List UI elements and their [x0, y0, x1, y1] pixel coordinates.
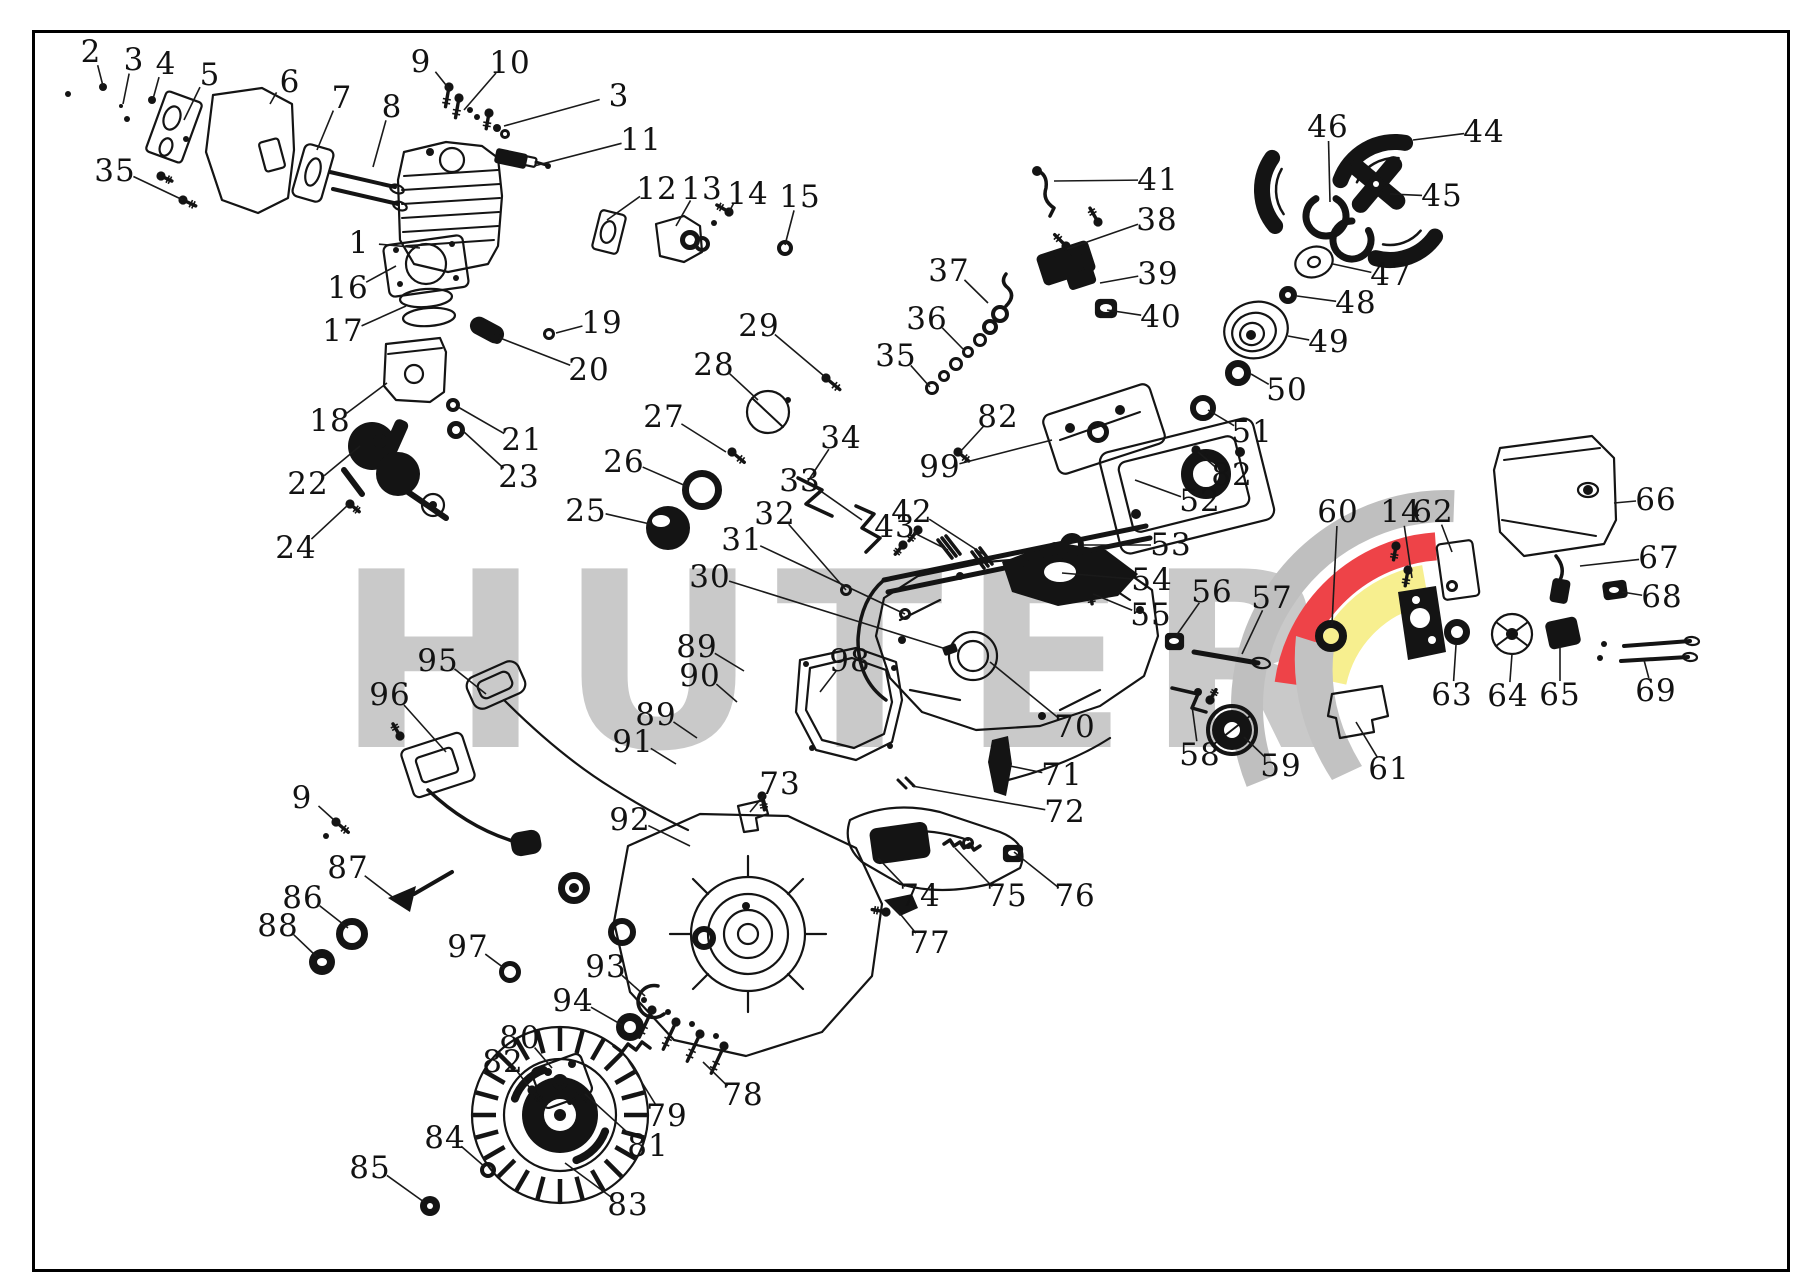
part-label-41: 41	[1137, 162, 1178, 198]
part-label-3: 3	[609, 78, 630, 114]
part-label-14: 14	[727, 176, 768, 212]
part-label-70: 70	[1054, 709, 1095, 745]
part-label-60: 60	[1317, 494, 1358, 530]
part-label-61: 61	[1368, 751, 1409, 787]
part-label-21: 21	[501, 422, 542, 458]
part-label-92: 92	[609, 802, 650, 838]
part-label-5: 5	[200, 57, 221, 93]
part-label-71: 71	[1041, 757, 1082, 793]
part-label-8: 8	[382, 89, 403, 125]
part-label-44: 44	[1463, 114, 1504, 150]
part-label-7: 7	[332, 80, 353, 116]
part-label-57: 57	[1251, 580, 1292, 616]
part-label-32: 32	[754, 496, 795, 532]
part-label-13: 13	[681, 171, 722, 207]
part-label-53: 53	[1150, 527, 1191, 563]
part-label-93: 93	[585, 949, 626, 985]
part-label-24: 24	[275, 530, 316, 566]
part-label-91: 91	[612, 724, 653, 760]
part-label-34: 34	[820, 420, 861, 456]
part-label-76: 76	[1054, 878, 1095, 914]
part-label-37: 37	[928, 253, 969, 289]
part-label-62: 62	[1412, 494, 1453, 530]
part-label-51: 51	[1231, 414, 1272, 450]
part-label-85: 85	[349, 1150, 390, 1186]
part-label-35: 35	[94, 153, 135, 189]
part-label-77: 77	[909, 925, 950, 961]
part-label-90: 90	[679, 658, 720, 694]
part-label-19: 19	[581, 305, 622, 341]
part-label-56: 56	[1191, 574, 1232, 610]
part-label-64: 64	[1487, 678, 1528, 714]
part-label-10: 10	[489, 45, 530, 81]
part-label-97: 97	[447, 929, 488, 965]
part-label-46: 46	[1307, 109, 1348, 145]
part-label-48: 48	[1335, 285, 1376, 321]
part-label-95: 95	[417, 643, 458, 679]
part-label-38: 38	[1136, 202, 1177, 238]
part-label-82: 82	[482, 1044, 523, 1080]
part-label-2: 2	[81, 34, 102, 70]
part-label-6: 6	[280, 64, 301, 100]
part-label-59: 59	[1260, 748, 1301, 784]
part-label-25: 25	[565, 493, 606, 529]
part-label-33: 33	[779, 463, 820, 499]
part-label-15: 15	[779, 179, 820, 215]
part-label-50: 50	[1266, 372, 1307, 408]
part-label-69: 69	[1635, 673, 1676, 709]
part-label-20: 20	[568, 352, 609, 388]
part-label-87: 87	[327, 850, 368, 886]
part-label-26: 26	[603, 444, 644, 480]
part-label-27: 27	[643, 399, 684, 435]
part-label-72: 72	[1044, 794, 1085, 830]
part-label-22: 22	[287, 466, 328, 502]
part-label-1: 1	[349, 225, 370, 261]
part-label-81: 81	[627, 1128, 668, 1164]
part-label-54: 54	[1131, 562, 1172, 598]
part-label-75: 75	[986, 878, 1027, 914]
part-label-12: 12	[636, 171, 677, 207]
part-label-16: 16	[327, 270, 368, 306]
part-label-99: 99	[919, 449, 960, 485]
part-label-94: 94	[552, 983, 593, 1019]
part-label-3: 3	[124, 42, 145, 78]
part-label-39: 39	[1137, 256, 1178, 292]
part-label-28: 28	[693, 347, 734, 383]
part-label-98: 98	[829, 643, 870, 679]
part-label-82: 82	[977, 399, 1018, 435]
part-label-9: 9	[292, 780, 313, 816]
part-label-9: 9	[411, 44, 432, 80]
part-label-49: 49	[1308, 324, 1349, 360]
parts-diagram-page: HUTER 1233456789910111213141415161718192…	[0, 0, 1809, 1283]
part-label-88: 88	[257, 908, 298, 944]
part-label-67: 67	[1638, 540, 1679, 576]
part-label-82: 82	[1211, 457, 1252, 493]
part-label-23: 23	[498, 459, 539, 495]
part-label-11: 11	[620, 122, 661, 158]
part-label-84: 84	[424, 1120, 465, 1156]
part-label-17: 17	[322, 313, 363, 349]
part-label-74: 74	[899, 878, 940, 914]
part-label-29: 29	[738, 308, 779, 344]
part-label-43: 43	[874, 509, 915, 545]
part-label-63: 63	[1431, 677, 1472, 713]
part-label-73: 73	[759, 766, 800, 802]
part-labels-layer: 1233456789910111213141415161718192021222…	[0, 0, 1809, 1283]
part-label-83: 83	[607, 1187, 648, 1223]
part-label-45: 45	[1421, 178, 1462, 214]
part-label-55: 55	[1130, 597, 1171, 633]
part-label-58: 58	[1179, 737, 1220, 773]
part-label-30: 30	[689, 559, 730, 595]
part-label-68: 68	[1641, 579, 1682, 615]
part-label-66: 66	[1635, 482, 1676, 518]
part-label-35: 35	[875, 338, 916, 374]
part-label-96: 96	[369, 677, 410, 713]
part-label-78: 78	[722, 1077, 763, 1113]
part-label-65: 65	[1539, 677, 1580, 713]
part-label-36: 36	[906, 301, 947, 337]
part-label-40: 40	[1140, 299, 1181, 335]
part-label-4: 4	[156, 46, 177, 82]
part-label-18: 18	[309, 403, 350, 439]
